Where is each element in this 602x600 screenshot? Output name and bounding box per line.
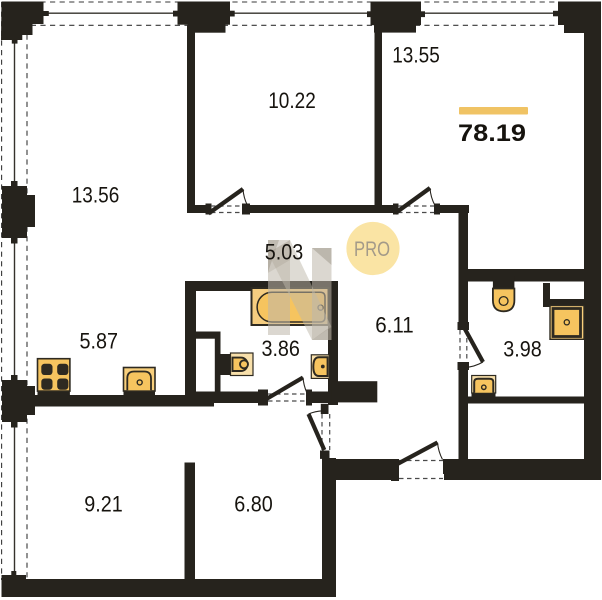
svg-text:13.55: 13.55 (392, 43, 440, 68)
svg-text:13.56: 13.56 (72, 183, 120, 208)
svg-text:3.98: 3.98 (503, 337, 542, 362)
svg-text:78.19: 78.19 (458, 120, 526, 147)
svg-text:5.03: 5.03 (265, 240, 304, 265)
svg-text:6.80: 6.80 (234, 492, 273, 517)
svg-text:PRO: PRO (354, 238, 390, 261)
svg-text:9.21: 9.21 (84, 492, 123, 517)
svg-text:5.87: 5.87 (80, 329, 119, 354)
svg-text:6.11: 6.11 (375, 313, 414, 338)
svg-text:10.22: 10.22 (268, 88, 316, 113)
svg-text:3.86: 3.86 (261, 336, 300, 361)
